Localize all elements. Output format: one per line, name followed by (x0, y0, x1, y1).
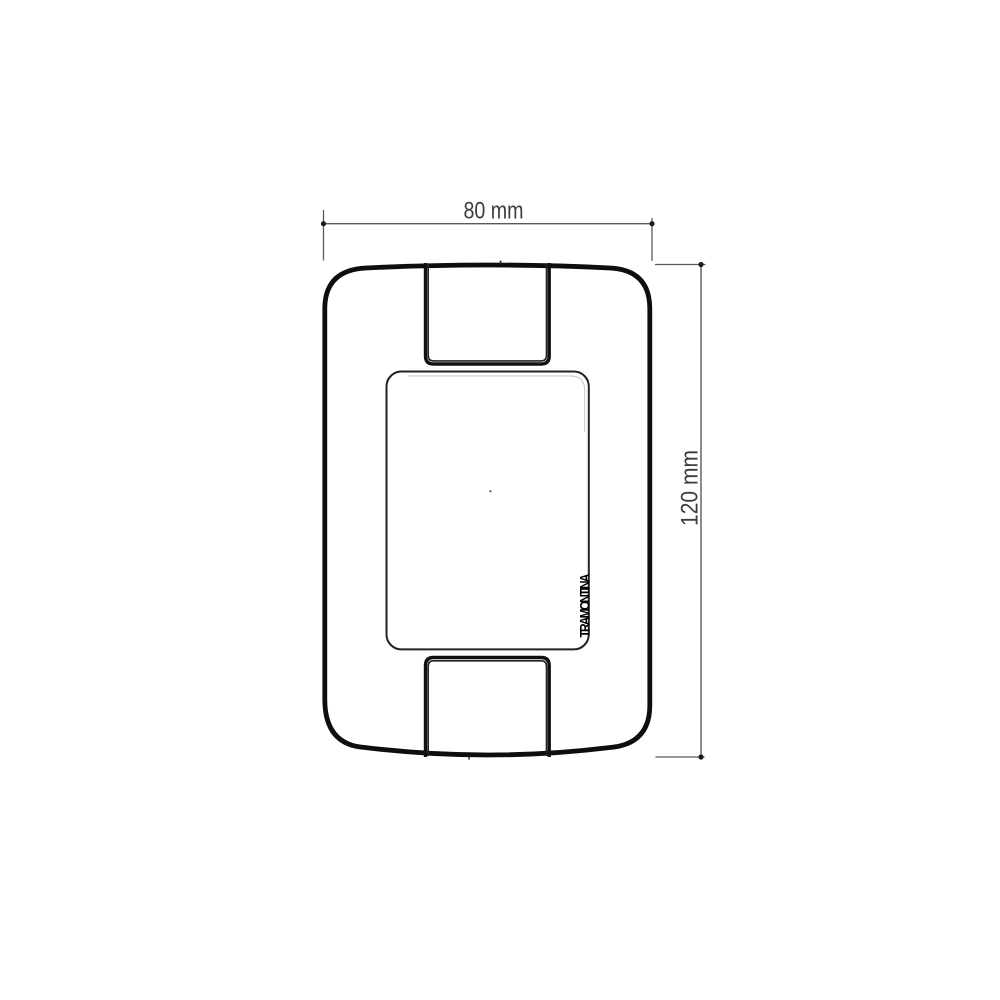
svg-text:80 mm: 80 mm (464, 198, 524, 225)
svg-text:120 mm: 120 mm (677, 450, 704, 526)
svg-text:TRAMONTINA: TRAMONTINA (577, 574, 593, 638)
